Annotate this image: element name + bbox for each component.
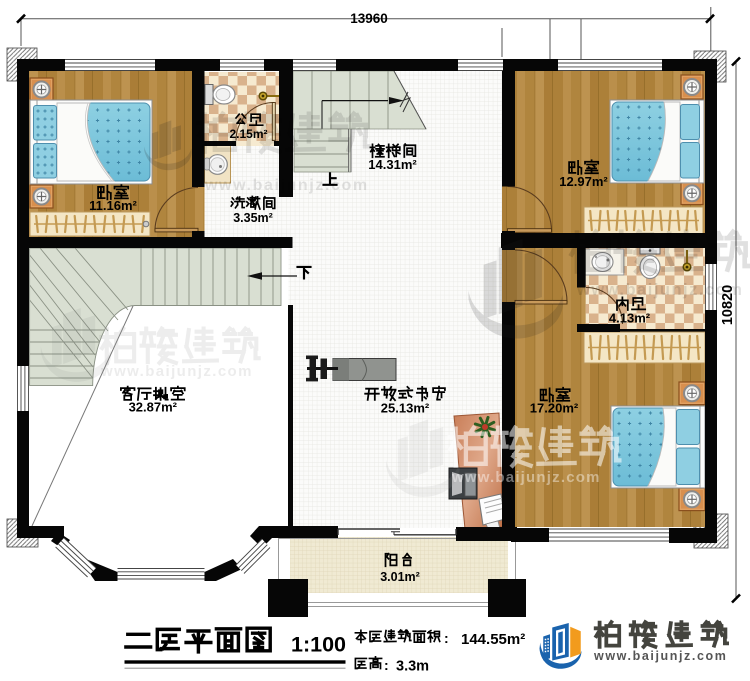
svg-text:www.baijunjz.com: www.baijunjz.com [100,363,253,380]
svg-text:www.baijunjz.com: www.baijunjz.com [576,281,743,299]
svg-text:11.16m²: 11.16m² [89,198,137,213]
svg-text:144.55m²: 144.55m² [461,631,525,648]
svg-text:1:100: 1:100 [291,633,346,657]
svg-text:www.baijunjz.com: www.baijunjz.com [593,649,727,663]
svg-text:32.87m²: 32.87m² [129,400,178,415]
svg-text:www.baijunjz.com: www.baijunjz.com [204,177,369,194]
svg-text:3.35m²: 3.35m² [233,211,273,225]
svg-text:3.01m²: 3.01m² [380,570,420,584]
svg-text:13960: 13960 [350,11,388,26]
svg-text:14.31m²: 14.31m² [368,157,417,172]
svg-text:25.13m²: 25.13m² [381,401,430,416]
svg-text:3.3m: 3.3m [396,659,429,675]
svg-text:12.97m²: 12.97m² [559,174,608,189]
svg-text:www.baijunjz.com: www.baijunjz.com [451,469,601,486]
svg-text::: : [444,630,449,646]
svg-text:4.13m²: 4.13m² [609,311,651,326]
svg-text:17.20m²: 17.20m² [530,401,579,416]
svg-text::: : [384,657,389,673]
